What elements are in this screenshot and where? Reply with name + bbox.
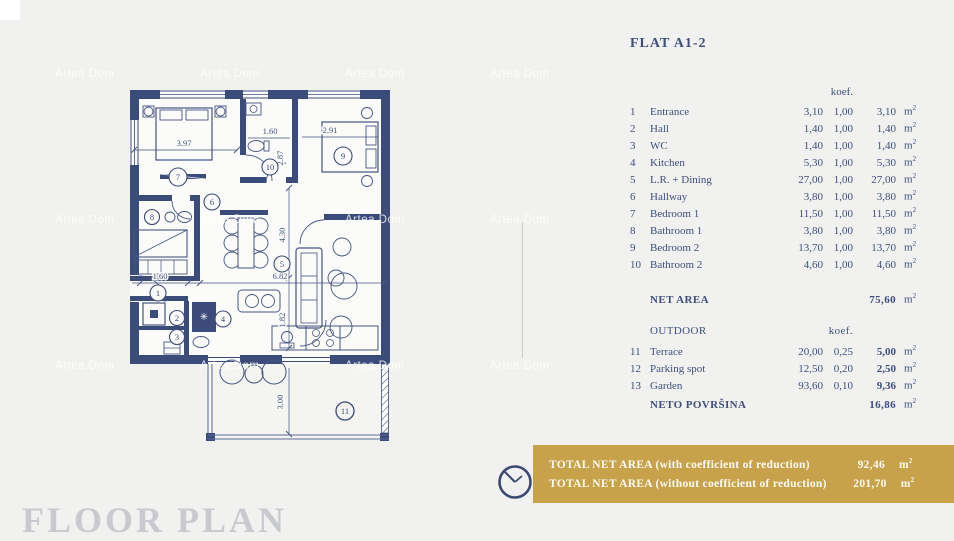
total-without-coefficient-value: 201,70 <box>827 475 887 494</box>
total-without-coefficient-unit: m2 <box>887 471 946 494</box>
net-area-row: NET AREA 75,60 m2 <box>630 288 930 305</box>
floor-plan-drawing: ✳ 3.97 1.60 2.87 2.91 4.30 6.82 1.60 1.8… <box>120 80 570 490</box>
clock-icon <box>496 463 534 501</box>
floor-plan-cropped-title: FLOOR PLAN <box>22 499 287 541</box>
area-table-row: 11 Terrace 20,00 0,25 5,00 m2 <box>630 340 930 357</box>
svg-text:3.97: 3.97 <box>177 138 192 148</box>
koef-header: koef. <box>823 84 853 101</box>
flat-title: FLAT A1-2 <box>630 36 707 52</box>
total-with-coefficient-value: 92,46 <box>825 456 885 475</box>
svg-text:5: 5 <box>280 259 284 269</box>
total-net-area-banner: TOTAL NET AREA (with coefficient of redu… <box>533 445 954 503</box>
svg-text:3: 3 <box>175 332 179 342</box>
indoor-rows: 1 Entrance 3,10 1,00 3,10 m2 2 Hall 1,40… <box>630 100 930 270</box>
outdoor-header-row: OUTDOOR koef. <box>630 323 930 340</box>
watermark: Artea Dom <box>55 360 114 372</box>
net-area-label: NET AREA <box>650 292 763 309</box>
svg-text:1.60: 1.60 <box>153 271 168 281</box>
watermark: Artea Dom <box>55 214 114 226</box>
neto-povrsina-value: 16,86 <box>853 397 896 414</box>
svg-text:1: 1 <box>156 288 160 298</box>
watermark: Artea Dom <box>345 68 404 80</box>
floor-plan: ✳ 3.97 1.60 2.87 2.91 4.30 6.82 1.60 1.8… <box>120 80 570 490</box>
neto-povrsina-unit: m2 <box>896 393 930 414</box>
svg-text:4.30: 4.30 <box>277 228 287 243</box>
outdoor-koef-header: koef. <box>823 323 853 340</box>
net-area-value: 75,60 <box>853 292 896 309</box>
svg-text:10: 10 <box>266 162 275 172</box>
outdoor-label: OUTDOOR <box>650 323 763 340</box>
watermark: Artea Dom <box>200 68 259 80</box>
koef-header-row: koef. <box>630 84 930 101</box>
total-with-coefficient-row: TOTAL NET AREA (with coefficient of redu… <box>533 452 954 471</box>
watermark: Artea Dom <box>55 68 114 80</box>
shaft-symbol: ✳ <box>200 312 208 323</box>
svg-text:1.82: 1.82 <box>277 313 287 328</box>
svg-text:1.60: 1.60 <box>263 126 278 136</box>
net-area-unit: m2 <box>896 288 930 309</box>
svg-text:11: 11 <box>341 406 349 416</box>
svg-text:7: 7 <box>176 172 180 182</box>
area-table-row: 1 Entrance 3,10 1,00 3,10 m2 <box>630 100 930 117</box>
neto-povrsina-row: NETO POVRŠINA 16,86 m2 <box>630 393 930 410</box>
svg-text:3.00: 3.00 <box>275 395 285 410</box>
svg-text:9: 9 <box>341 151 345 161</box>
neto-povrsina-label: NETO POVRŠINA <box>650 397 763 414</box>
area-table-panel: FLAT A1-2 koef. 1 Entrance 3,10 1,00 3,1… <box>628 0 934 513</box>
total-with-coefficient-label: TOTAL NET AREA (with coefficient of redu… <box>549 456 825 475</box>
svg-text:6: 6 <box>210 197 214 207</box>
watermark: Artea Dom <box>490 68 549 80</box>
svg-text:8: 8 <box>150 212 154 222</box>
svg-text:2: 2 <box>175 313 179 323</box>
svg-text:6.82: 6.82 <box>273 271 288 281</box>
total-without-coefficient-label: TOTAL NET AREA (without coefficient of r… <box>549 475 827 494</box>
total-without-coefficient-row: TOTAL NET AREA (without coefficient of r… <box>533 471 954 490</box>
corner-chip <box>0 0 20 20</box>
room-floors <box>130 90 390 440</box>
svg-text:2.91: 2.91 <box>323 125 338 135</box>
real-estate-floorplan-page: { "watermark": { "text": "Artea Dom" }, … <box>0 0 954 513</box>
outdoor-rows: 11 Terrace 20,00 0,25 5,00 m2 12 Parking… <box>630 340 930 391</box>
